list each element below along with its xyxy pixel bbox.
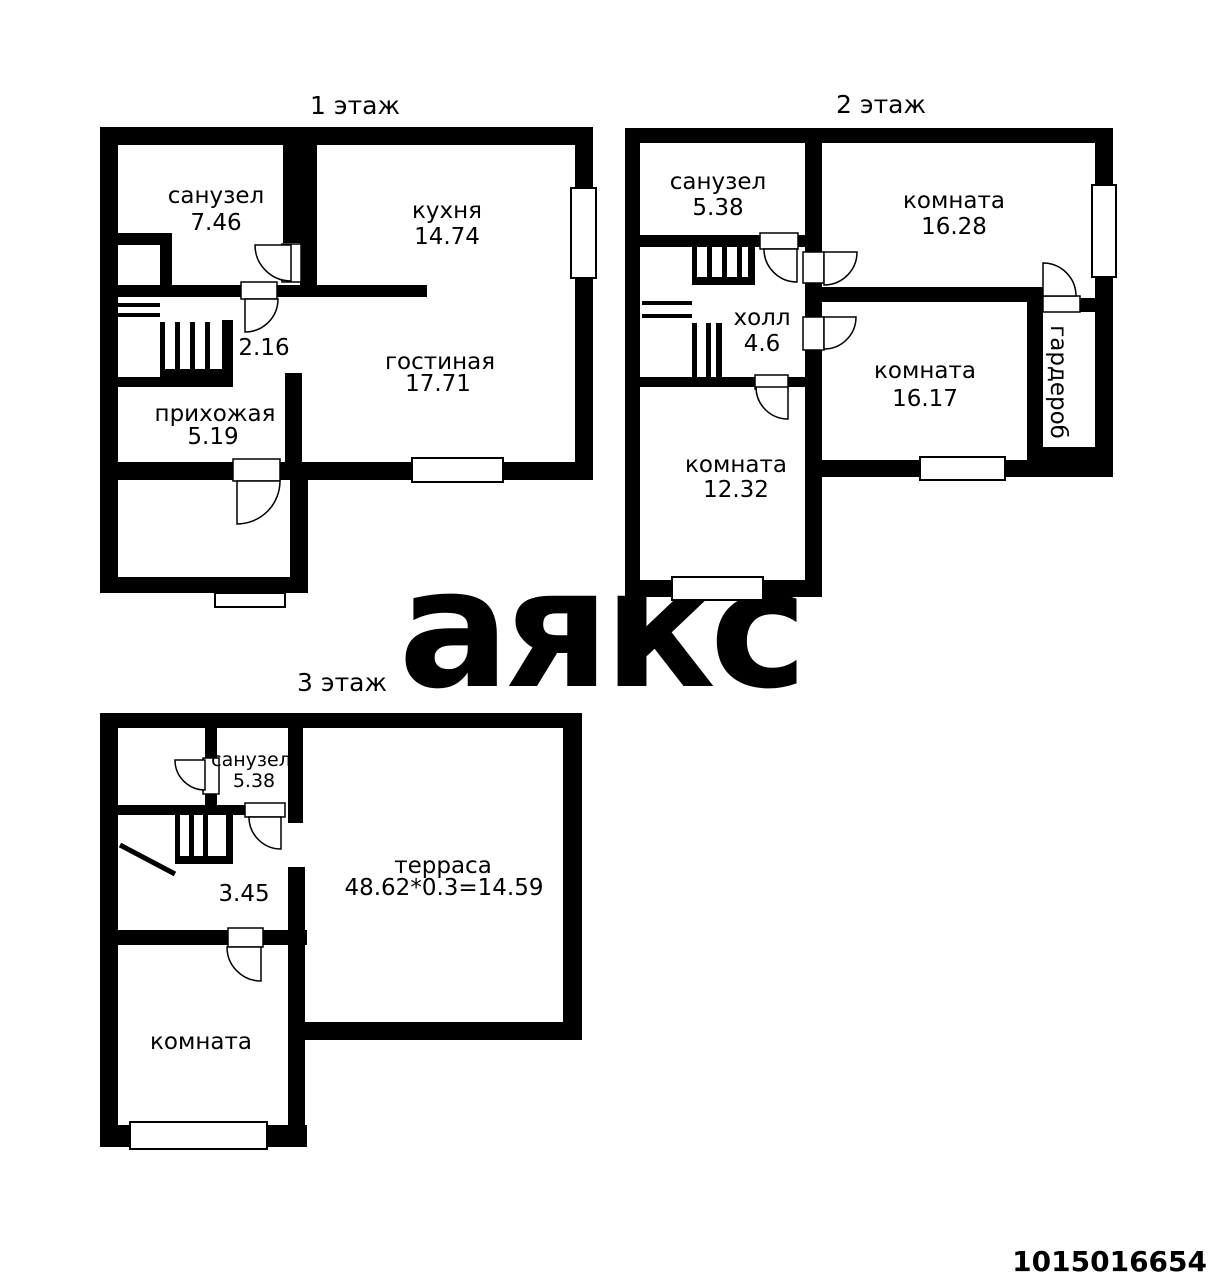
room-label-bathroom-f3: санузел (211, 749, 291, 771)
floor2-bathroom-door-opening (760, 233, 798, 249)
floor3-window-bottom (130, 1122, 267, 1149)
floor1-entry-step (215, 593, 285, 607)
floor2-plan: 2 этаж санузел 5.38 комната 16.28 холл 4… (625, 90, 1116, 600)
floor3-plan: 3 этаж санузел 5.38 терраса 48.62*0.3=14… (100, 668, 582, 1149)
room-label-hall-f2: холл (733, 305, 790, 331)
floor1-plan: 1 этаж санузел 7.46 кухня 14.74 гостиная… (100, 91, 596, 607)
floor2-room1628-door-opening (803, 252, 824, 283)
room-area-bathroom-f1: 7.46 (190, 210, 241, 236)
room-area-hall-f2: 4.6 (744, 331, 781, 357)
room-area-bathroom-f3: 5.38 (233, 770, 275, 792)
room-label-room-f3: комната (150, 1029, 252, 1055)
room-area-room1617: 16.17 (892, 386, 958, 412)
floor3-title: 3 этаж (297, 668, 387, 697)
room-area-living: 17.71 (405, 371, 471, 397)
room-label-kitchen: кухня (412, 198, 482, 224)
room-area-kitchen: 14.74 (414, 224, 480, 250)
floor2-title: 2 этаж (836, 90, 926, 119)
floor2-wardrobe-door-opening (1043, 296, 1080, 312)
room-area-terrace: 48.62*0.3=14.59 (344, 875, 543, 901)
room-label-room1232: комната (685, 452, 787, 478)
room-area-bathroom-f2: 5.38 (692, 195, 743, 221)
room-label-room1617: комната (874, 358, 976, 384)
room-label-bathroom-f1: санузел (168, 183, 264, 209)
listing-id: 1015016654 (1012, 1245, 1207, 1278)
room-area-stairs-f3: 3.45 (218, 881, 269, 907)
floor2-window-bottom-left (672, 577, 763, 600)
floor1-title: 1 этаж (310, 91, 400, 120)
floor1-front-door-opening (233, 459, 280, 481)
floor2-window-right (1092, 185, 1116, 277)
floor3-room-door-opening (228, 928, 263, 947)
floorplan-canvas: аякс 1 этаж санузел 7.46 кухня 14.74 гос… (0, 0, 1230, 1280)
room-label-wardrobe: гардероб (1045, 325, 1071, 439)
floor2-window-bottom-right (920, 457, 1005, 480)
room-label-bathroom-f2: санузел (670, 169, 766, 195)
room-area-stairs-f1: 2.16 (238, 335, 289, 361)
room-area-entry-hall: 5.19 (187, 424, 238, 450)
floorplan-svg: аякс 1 этаж санузел 7.46 кухня 14.74 гос… (0, 0, 1230, 1280)
floor3-bathroom-door-opening (245, 803, 285, 817)
floor1-window-bottom (412, 458, 503, 482)
room-area-room1628: 16.28 (921, 214, 987, 240)
floor1-hall-door-opening (241, 282, 277, 299)
room-label-room1628: комната (903, 188, 1005, 214)
floor2-room1617-door-opening (803, 317, 824, 350)
floor1-window-right (571, 188, 596, 278)
room-area-room1232: 12.32 (703, 477, 769, 503)
